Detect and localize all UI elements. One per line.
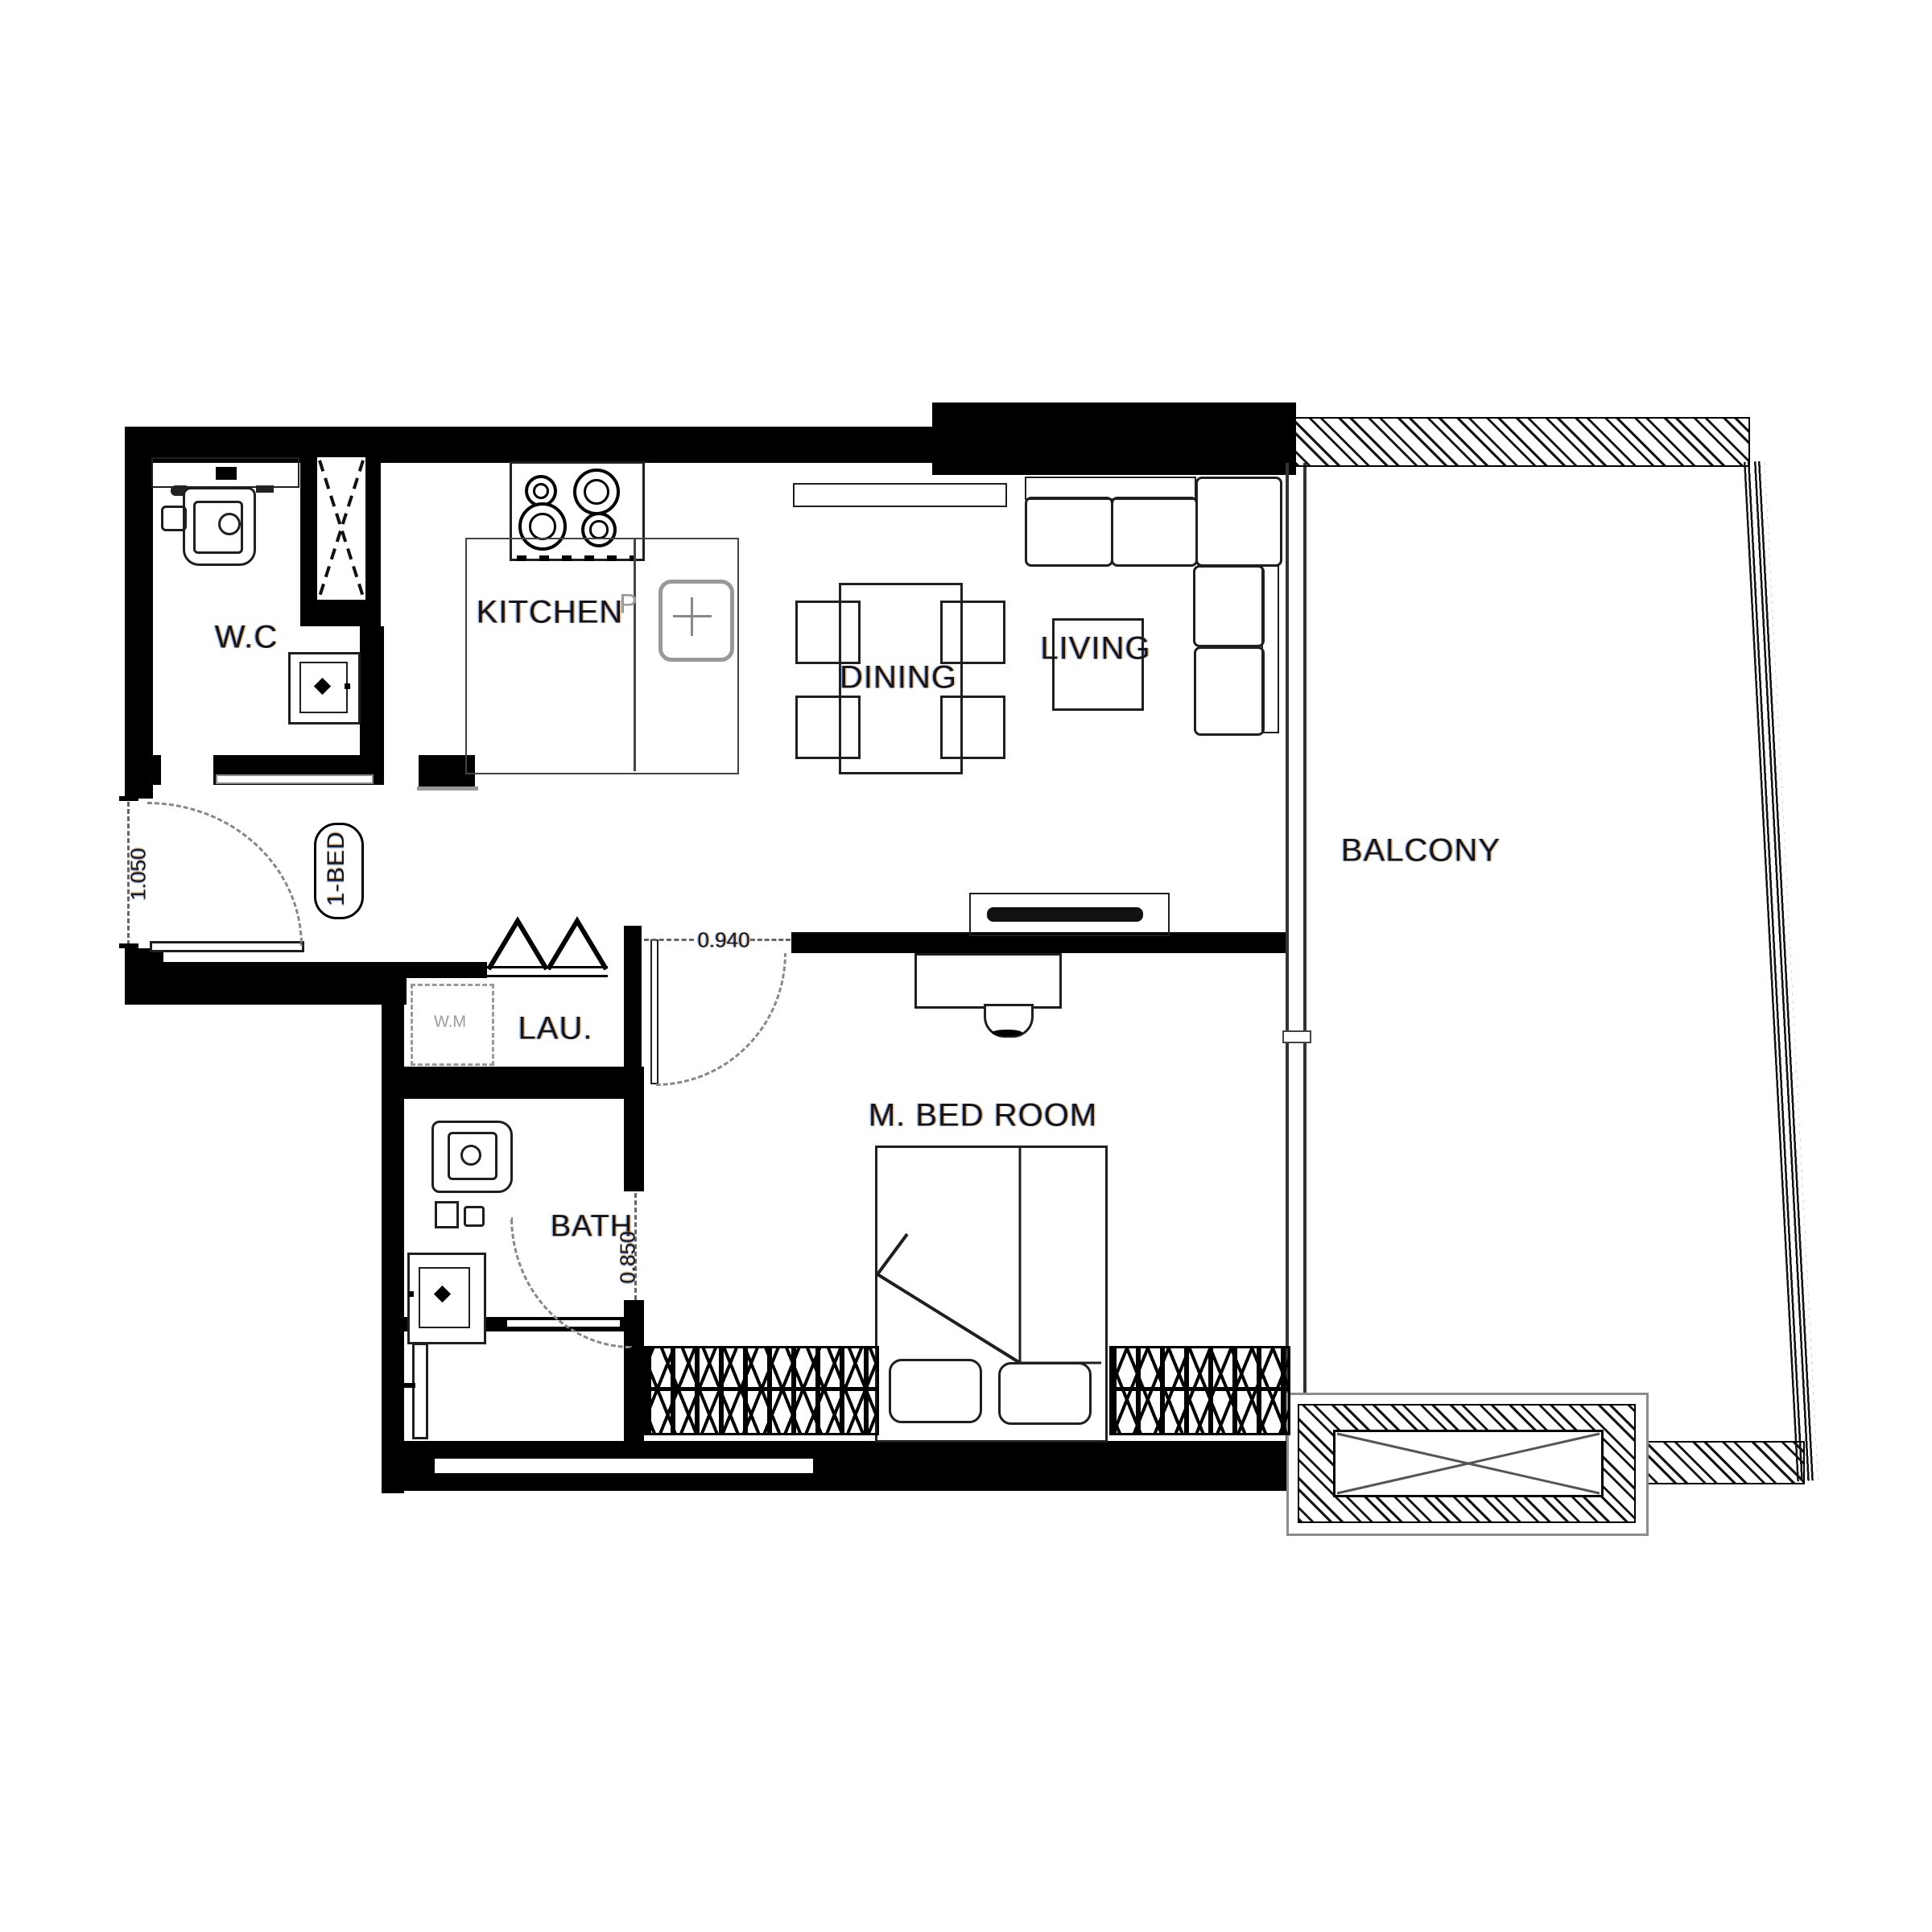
- washing-machine-label: W.M: [434, 1013, 466, 1032]
- entry-door-swing-arc: [147, 802, 303, 946]
- bath-basin-tap-dot: [408, 1291, 414, 1297]
- wall-lau-bath: [382, 1067, 644, 1099]
- sofa-seat: [1111, 497, 1198, 567]
- wall-left: [125, 427, 153, 799]
- bedroom-door-dim-line-l: [644, 939, 694, 941]
- wall-wc-south-stub: [125, 755, 161, 785]
- tv-icon: [987, 907, 1143, 922]
- wc-basin-tap-dot: [345, 683, 350, 689]
- room-label-balcony: BALCONY: [1341, 833, 1501, 869]
- wardrobe-left: [644, 1346, 879, 1435]
- wall-lower-left: [382, 1095, 404, 1493]
- shower-valve-icon: [398, 1383, 415, 1388]
- balcony-railing: [1744, 461, 1818, 1482]
- wc-valve-icon: [256, 485, 274, 493]
- wall-entry-bottom: [125, 962, 407, 1005]
- kitchen-threshold-line: [417, 786, 478, 791]
- balcony-top-wall: [1294, 417, 1750, 467]
- duct-shaft: [316, 456, 367, 601]
- bedroom-desk: [914, 953, 1062, 1009]
- entry-dim-tick-bottom: [119, 943, 138, 948]
- ac-unit-x-icon: [1335, 1432, 1601, 1495]
- wc-floor-drain: [161, 506, 187, 531]
- wall-entry-lip: [407, 962, 487, 978]
- dining-console: [793, 483, 1007, 507]
- bed-pillow: [998, 1362, 1092, 1425]
- bath-door-dimension: 0.850: [616, 1231, 641, 1283]
- glazing-mullion: [1282, 1030, 1311, 1043]
- room-label-wc: W.C: [215, 620, 279, 656]
- unit-badge-label: 1-BED: [323, 831, 350, 906]
- kitchen-sink: [658, 580, 734, 662]
- sofa-backrest-right: [1261, 565, 1279, 733]
- kitchen-marker-p: P: [619, 589, 638, 621]
- wc-toilet-drain-icon: [218, 513, 241, 535]
- duct-shaft-x-icon: [317, 457, 365, 600]
- bedroom-door-swing-arc: [655, 953, 786, 1086]
- kitchen-sink-cross-h: [673, 615, 712, 617]
- wc-cistern-icon: [216, 467, 237, 480]
- laundry-bifold-door-icon: [487, 918, 608, 971]
- bath-toilet-drain-icon: [460, 1145, 481, 1166]
- bed-pillow: [889, 1359, 982, 1423]
- shower-panel: [412, 1343, 428, 1439]
- wall-top-header: [932, 402, 1296, 475]
- bedroom-door-dimension: 0.940: [697, 928, 749, 953]
- wall-bath-bedroom-upper: [624, 1084, 644, 1191]
- wc-sliding-door: [216, 774, 374, 784]
- sofa-seat: [1025, 497, 1113, 567]
- bedroom-door-dim-line-r: [750, 939, 791, 941]
- glazing-line-inner: [1303, 463, 1307, 1441]
- glazing-line-outer: [1286, 463, 1289, 1441]
- balcony-bottom-wall: [1642, 1441, 1805, 1484]
- stove-burner-icon: [573, 469, 620, 515]
- bath-bidet-spray-icon: [435, 1201, 459, 1228]
- room-label-laundry: LAU.: [518, 1011, 593, 1047]
- desk-chair-base: [992, 1030, 1022, 1036]
- room-label-master-bedroom: M. BED ROOM: [869, 1098, 1097, 1134]
- laundry-door-track: [487, 966, 608, 977]
- floor-plan-canvas: W.C KITCHEN P DINING LIVING BALCONY M. B…: [0, 0, 1932, 1932]
- room-label-living: LIVING: [1040, 631, 1150, 667]
- wall-lau-right: [624, 926, 642, 1084]
- room-label-dining: DINING: [840, 660, 957, 696]
- wardrobe-right: [1109, 1346, 1290, 1435]
- bath-floor-drain: [464, 1206, 485, 1227]
- entry-dim-tick-top: [119, 796, 138, 801]
- sofa-corner-seat: [1195, 477, 1282, 567]
- sofa-seat: [1193, 565, 1265, 647]
- kitchen-counter-divider: [634, 538, 636, 771]
- sofa-seat: [1194, 646, 1265, 736]
- shower-valve-handle: [394, 1377, 399, 1394]
- ac-unit-core: [1333, 1430, 1604, 1497]
- wall-bottom-inset: [435, 1459, 813, 1473]
- room-label-kitchen: KITCHEN: [477, 595, 624, 631]
